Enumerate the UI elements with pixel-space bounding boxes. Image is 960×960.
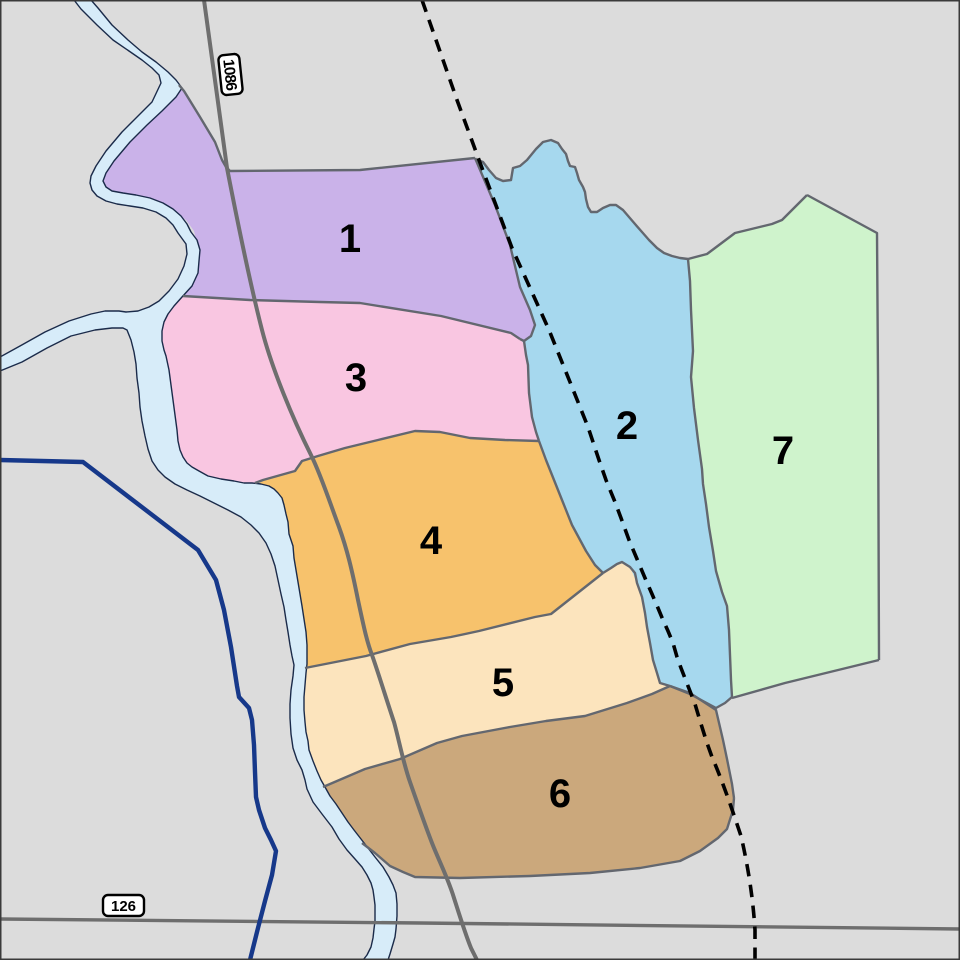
svg-text:1086: 1086 xyxy=(219,58,239,92)
svg-text:4: 4 xyxy=(420,519,443,563)
svg-text:7: 7 xyxy=(772,429,794,473)
svg-text:3: 3 xyxy=(345,356,367,400)
svg-text:5: 5 xyxy=(492,661,514,705)
svg-text:1: 1 xyxy=(339,217,361,261)
svg-text:2: 2 xyxy=(616,404,638,448)
svg-text:6: 6 xyxy=(549,772,571,816)
svg-text:126: 126 xyxy=(111,898,136,915)
